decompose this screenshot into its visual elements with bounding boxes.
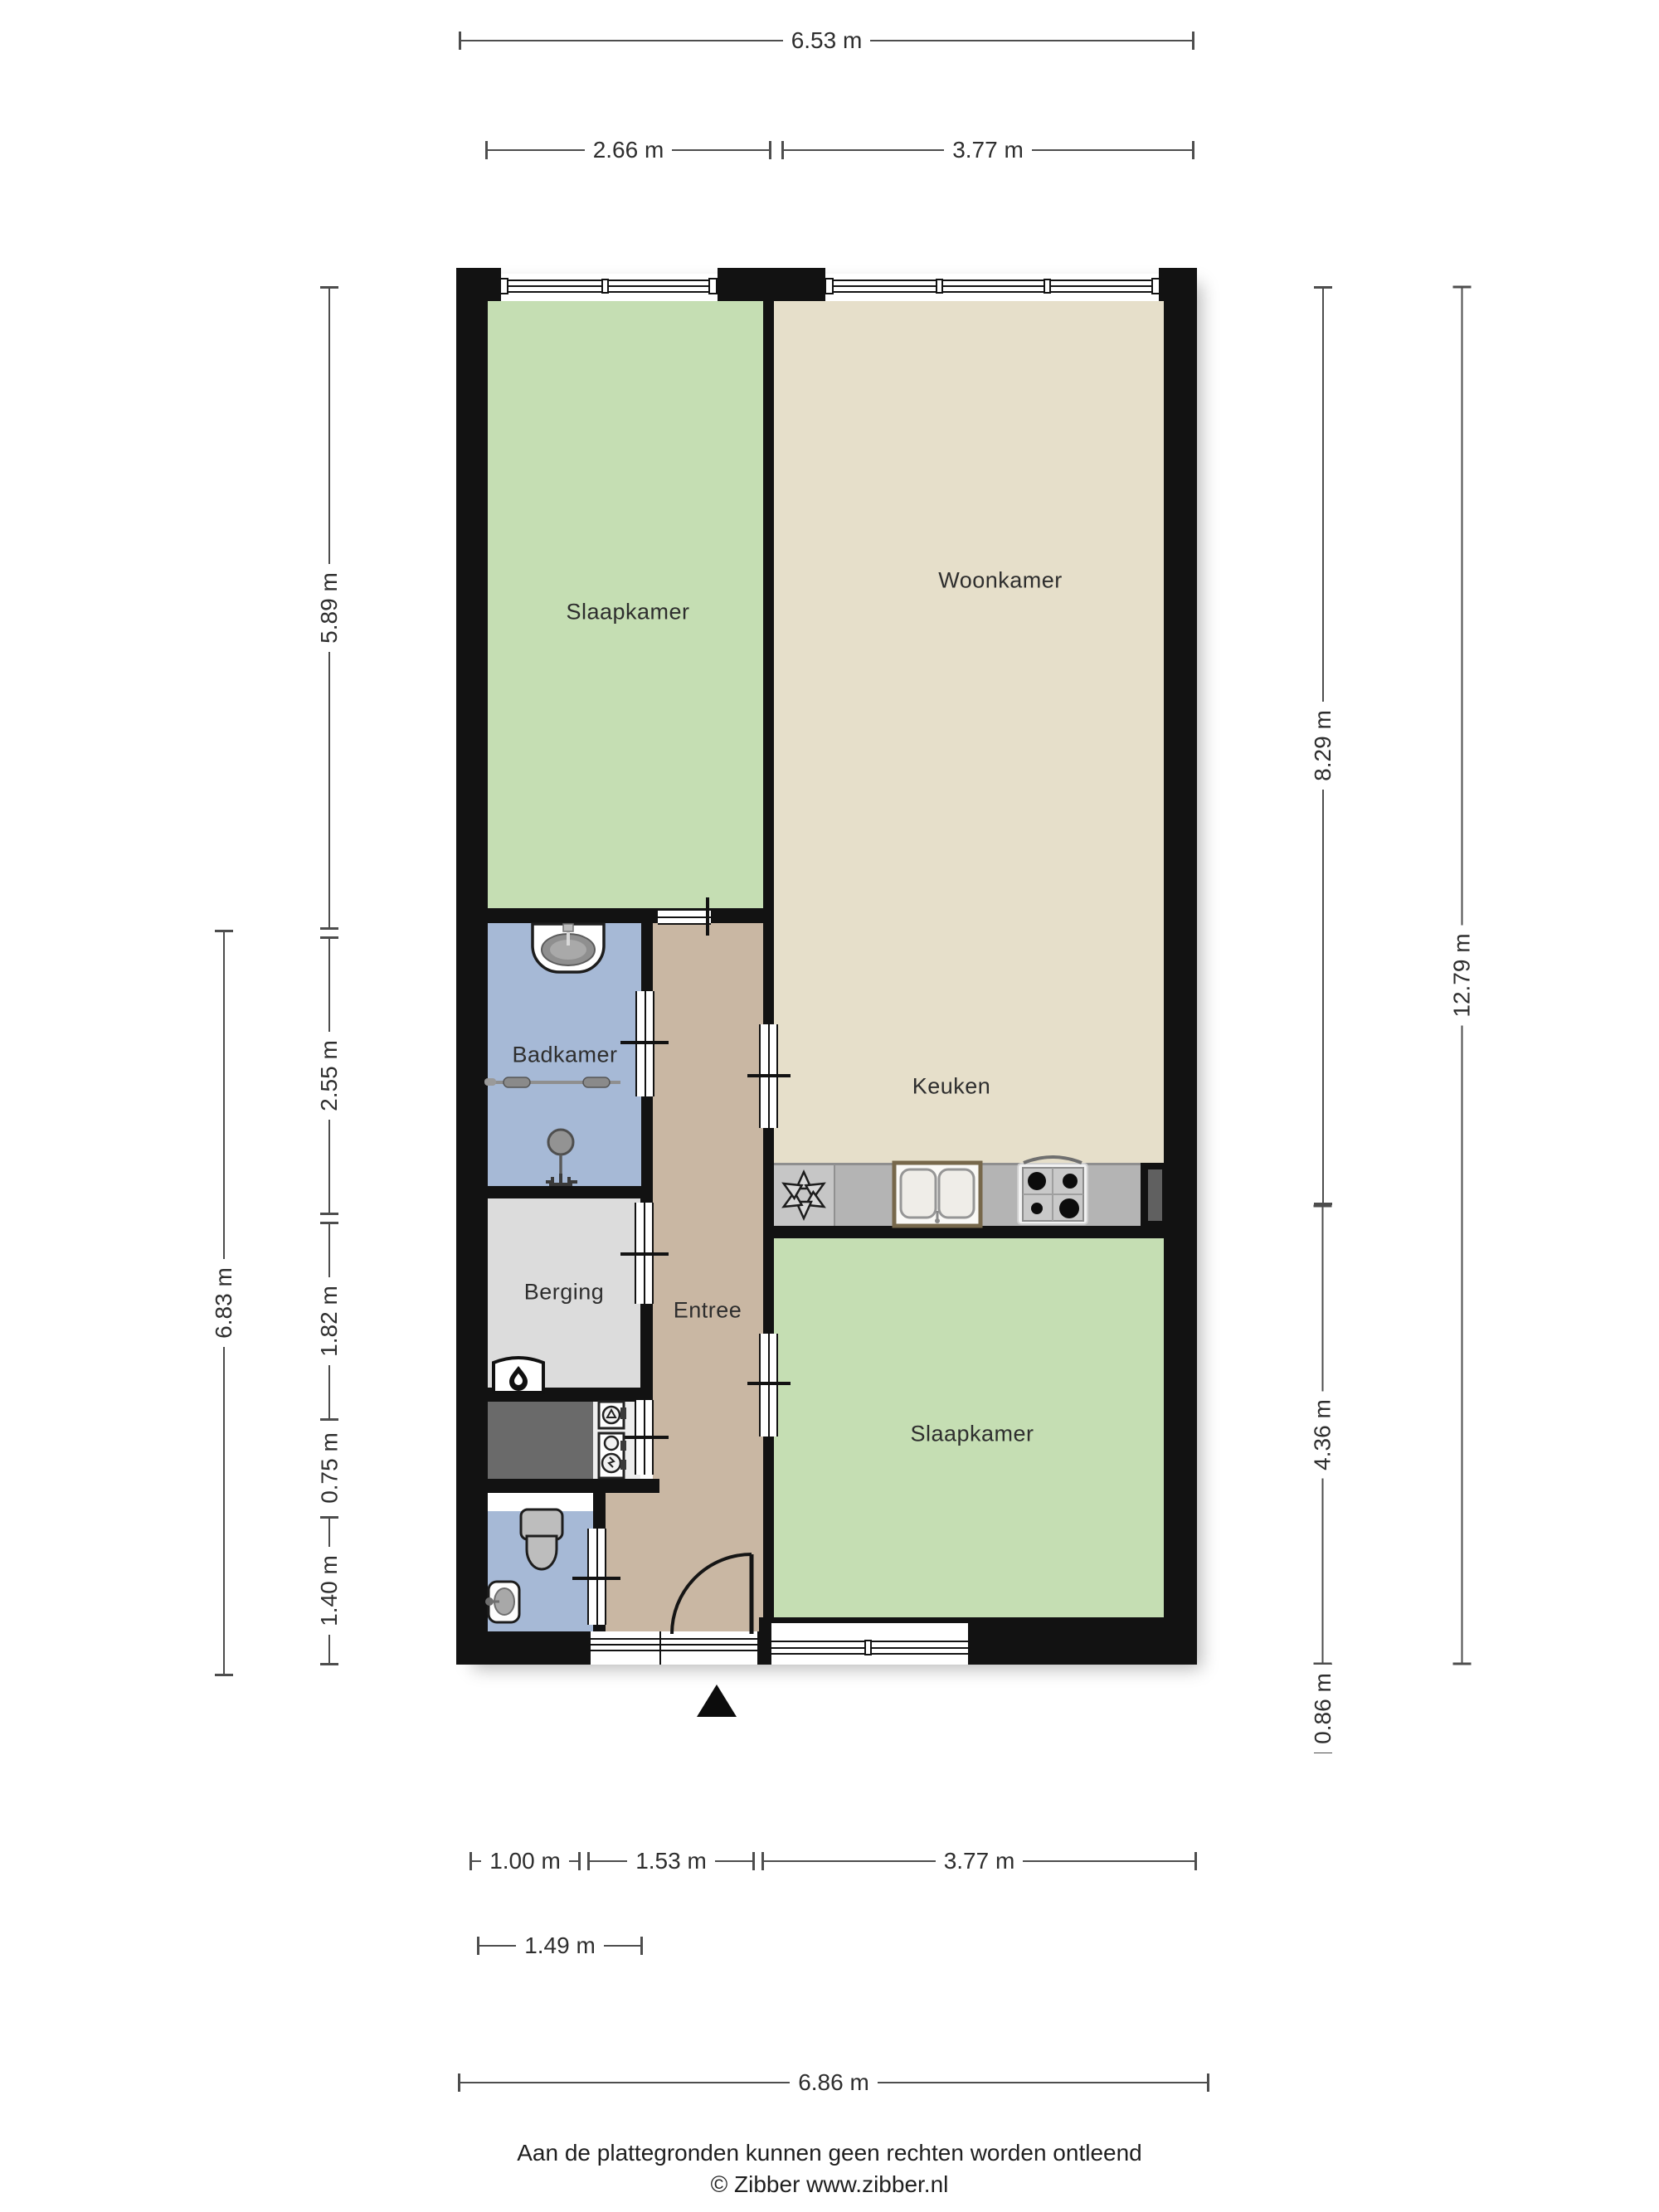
label-bathroom: Badkamer bbox=[512, 1043, 617, 1068]
dim-left-storage: 1.82 m bbox=[317, 1222, 342, 1421]
front-door-swing-icon bbox=[672, 1554, 752, 1634]
label-bedroom-top: Slaapkamer bbox=[566, 600, 689, 625]
footer-disclaimer: Aan de plattegronden kunnen geen rechten… bbox=[0, 2140, 1659, 2166]
dim-value: 1.49 m bbox=[516, 1933, 604, 1958]
dim-top-right-section: 3.77 m bbox=[781, 138, 1194, 163]
kitchen-sink-icon bbox=[894, 1163, 980, 1226]
dim-bottom-total: 6.86 m bbox=[458, 2070, 1209, 2095]
dim-left-lower-total: 6.83 m bbox=[212, 930, 236, 1676]
dim-right-lower: 4.36 m bbox=[1311, 1205, 1335, 1665]
dim-value: 8.29 m bbox=[1311, 702, 1335, 790]
towel-rail-icon bbox=[484, 1077, 620, 1087]
dim-top-total: 6.53 m bbox=[459, 28, 1194, 53]
dim-right-total: 12.79 m bbox=[1450, 286, 1475, 1665]
dim-right-below-plan: 0.86 m bbox=[1311, 1664, 1335, 1753]
dim-right-upper: 8.29 m bbox=[1311, 286, 1335, 1205]
extractor-fan-icon bbox=[780, 1172, 827, 1218]
dim-value: 0.86 m bbox=[1311, 1665, 1335, 1753]
dim-bottom-hall: 1.53 m bbox=[587, 1849, 755, 1874]
dim-value: 6.83 m bbox=[212, 1259, 236, 1347]
label-hall: Entree bbox=[674, 1298, 742, 1324]
label-living-room: Woonkamer bbox=[938, 568, 1063, 594]
footer-credit: © Zibber www.zibber.nl bbox=[0, 2171, 1659, 2198]
dim-value: 1.40 m bbox=[317, 1547, 342, 1635]
dim-value: 5.89 m bbox=[317, 564, 342, 652]
label-storage: Berging bbox=[524, 1280, 605, 1305]
dim-value: 6.53 m bbox=[783, 28, 871, 53]
hand-basin-icon bbox=[485, 1582, 519, 1622]
dim-top-left-section: 2.66 m bbox=[485, 138, 771, 163]
dim-bottom-bedroom: 3.77 m bbox=[761, 1849, 1197, 1874]
label-bedroom-bottom: Slaapkamer bbox=[910, 1422, 1034, 1447]
dim-value: 2.55 m bbox=[317, 1032, 342, 1120]
boiler-icon bbox=[494, 1358, 543, 1393]
dim-value: 1.82 m bbox=[317, 1277, 342, 1365]
dim-left-bedroom: 5.89 m bbox=[317, 286, 342, 930]
toilet-icon bbox=[521, 1510, 562, 1569]
dim-left-bathroom: 2.55 m bbox=[317, 936, 342, 1215]
dim-value: 3.77 m bbox=[944, 138, 1032, 163]
shower-icon bbox=[546, 1130, 577, 1184]
dim-value: 6.86 m bbox=[790, 2070, 878, 2095]
entrance-arrow-icon bbox=[697, 1685, 737, 1717]
stove-icon bbox=[1018, 1157, 1087, 1224]
dim-left-toilet: 1.40 m bbox=[317, 1516, 342, 1665]
meter-icon bbox=[599, 1402, 626, 1478]
dim-value: 2.66 m bbox=[585, 138, 673, 163]
dim-value: 3.77 m bbox=[936, 1849, 1024, 1874]
dim-bottom-left: 1.00 m bbox=[469, 1849, 581, 1874]
dim-left-closet: 0.75 m bbox=[318, 1427, 343, 1510]
dim-value: 1.53 m bbox=[627, 1849, 715, 1874]
dim-value: 12.79 m bbox=[1450, 925, 1475, 1025]
label-kitchen: Keuken bbox=[912, 1074, 991, 1100]
floorplan-page: Slaapkamer Woonkamer Keuken Badkamer Ber… bbox=[0, 0, 1659, 2212]
washbasin-icon bbox=[533, 924, 604, 972]
dim-value: 4.36 m bbox=[1311, 1391, 1335, 1479]
dim-value: 1.00 m bbox=[481, 1849, 569, 1874]
dim-bottom-entrance: 1.49 m bbox=[477, 1933, 643, 1958]
dim-value: 0.75 m bbox=[318, 1424, 343, 1512]
fixtures-layer bbox=[0, 0, 1659, 2212]
